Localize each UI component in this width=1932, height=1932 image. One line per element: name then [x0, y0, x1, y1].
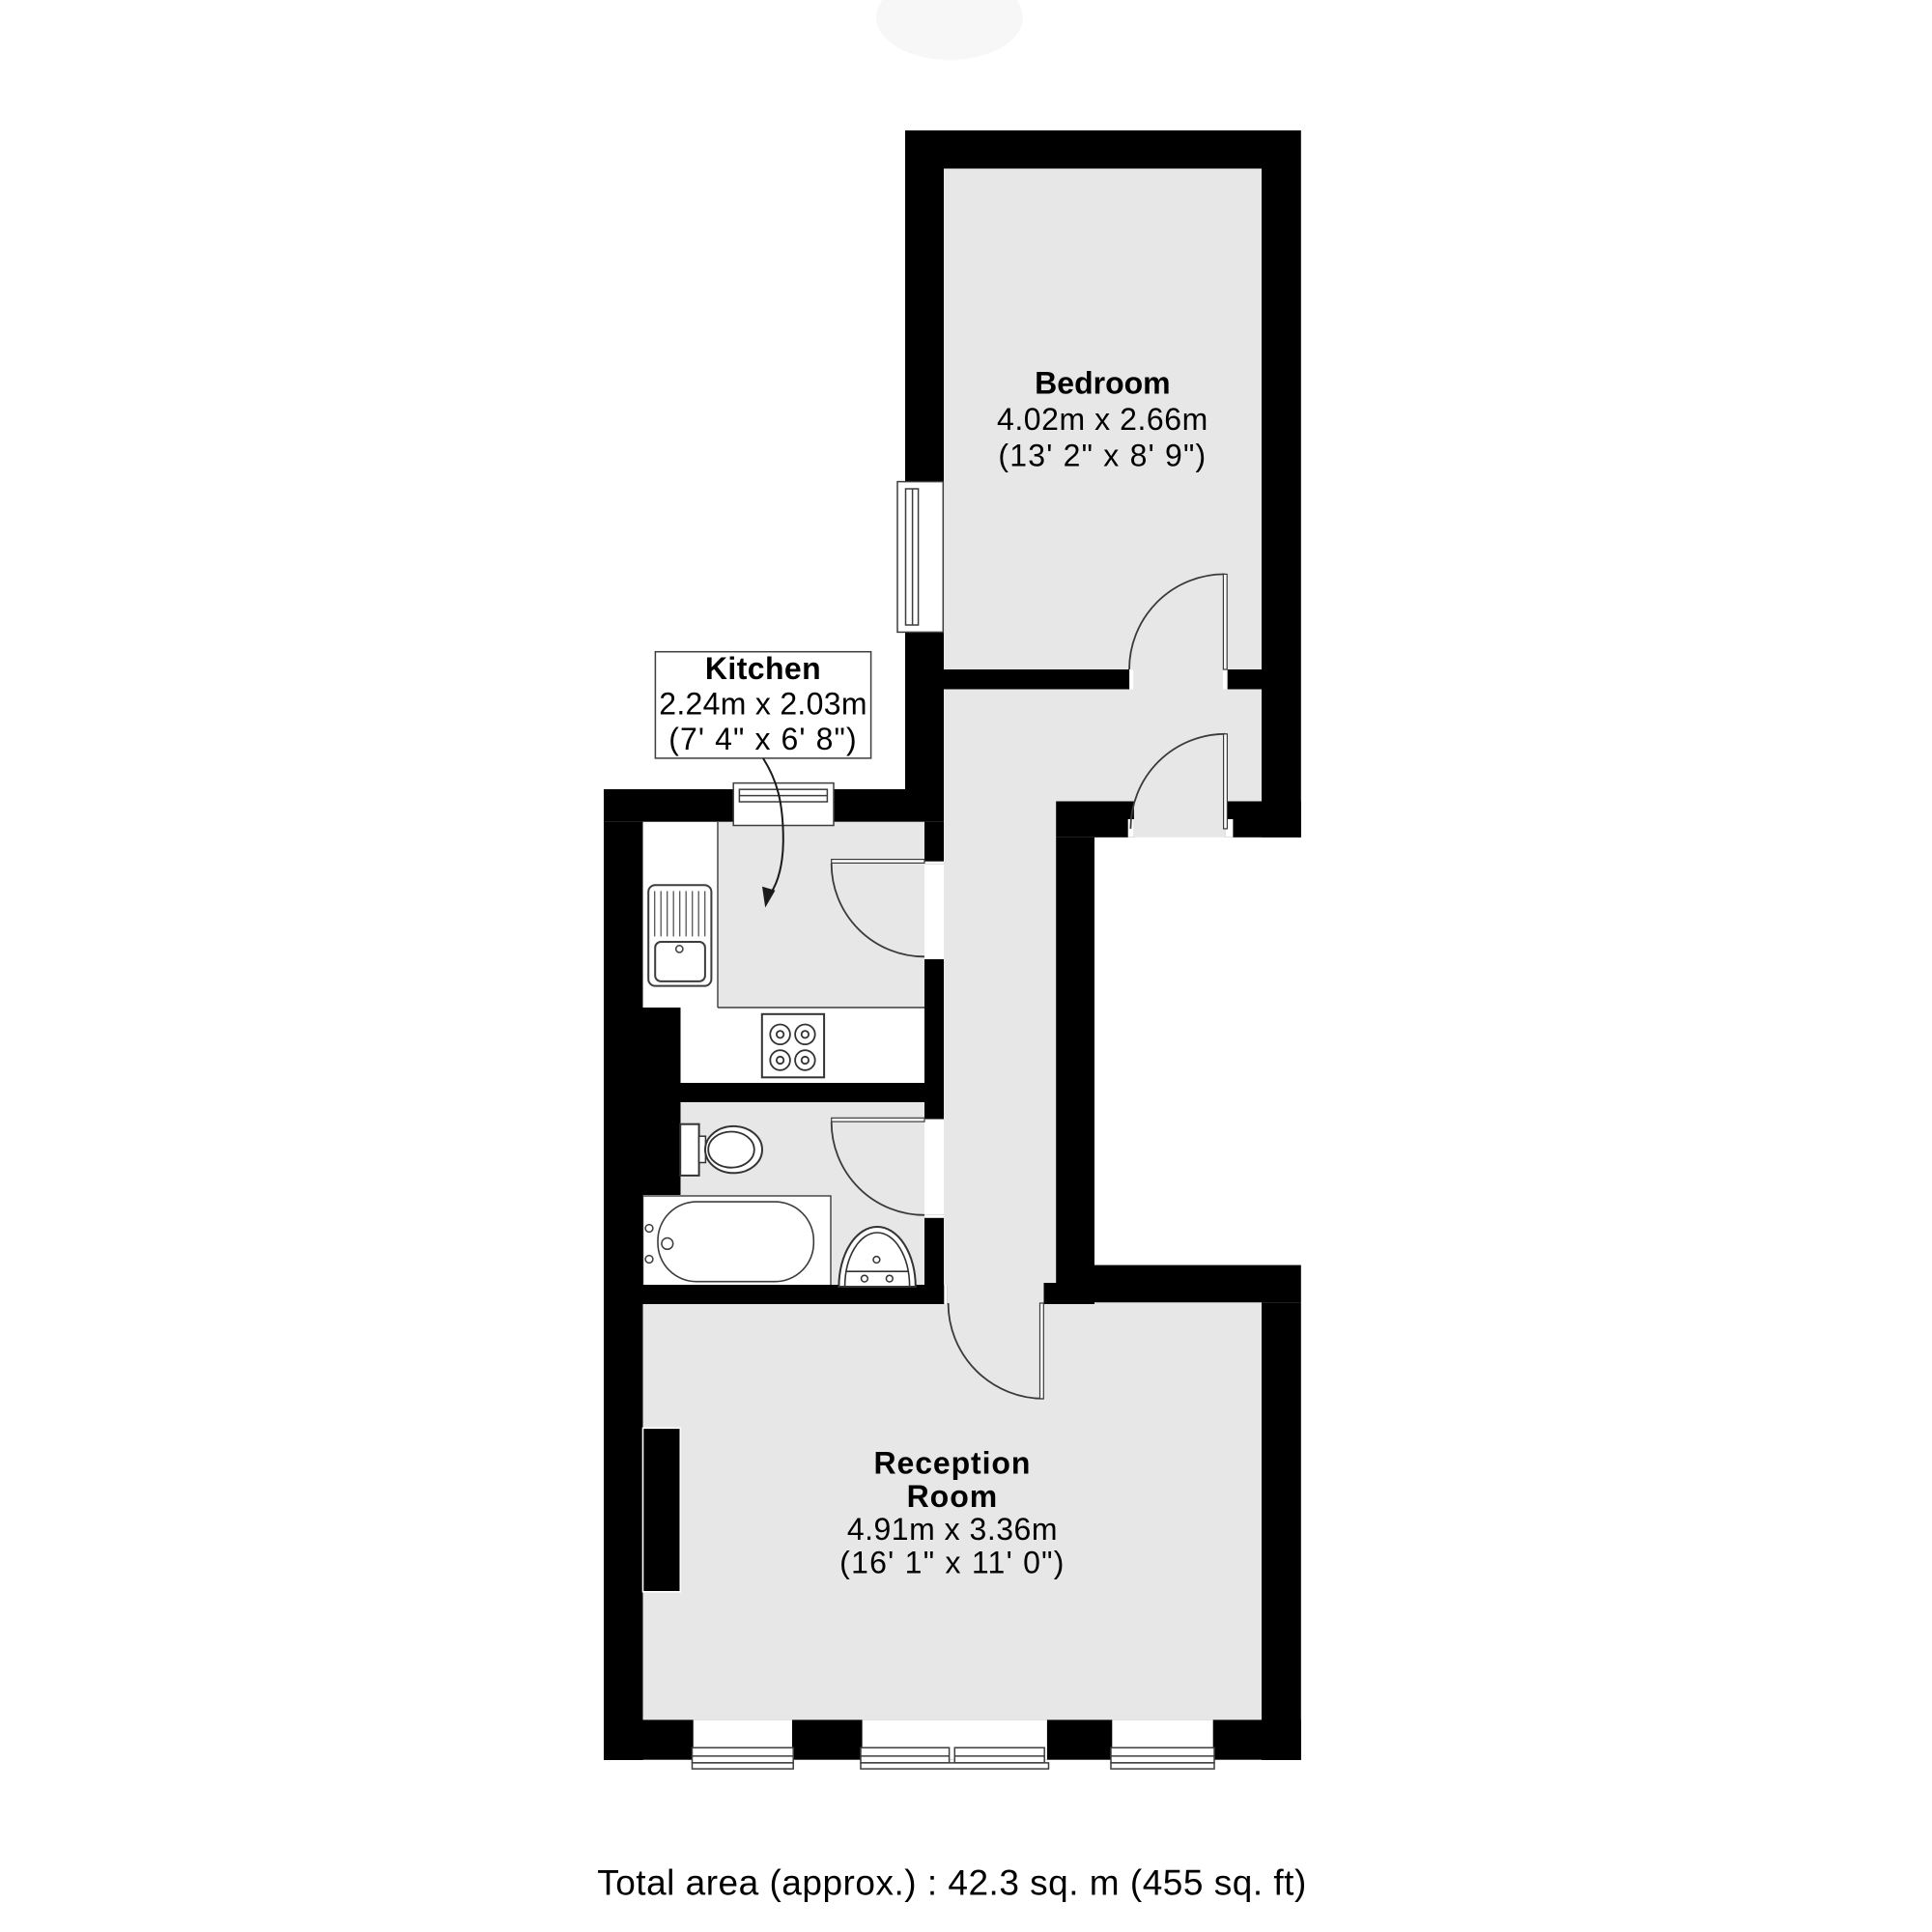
- svg-text:Bedroom: Bedroom: [1035, 365, 1170, 400]
- svg-text:Reception: Reception: [874, 1446, 1032, 1481]
- svg-text:(13' 2" x 8' 9"): (13' 2" x 8' 9"): [998, 438, 1207, 472]
- svg-text:Total area (approx.) : 42.3 sq: Total area (approx.) : 42.3 sq. m (455 s…: [597, 1863, 1307, 1903]
- svg-text:Kitchen: Kitchen: [705, 651, 821, 686]
- svg-text:(16' 1" x 11' 0"): (16' 1" x 11' 0"): [839, 1545, 1065, 1579]
- svg-text:Room: Room: [907, 1479, 999, 1514]
- svg-text:2.24m x 2.03m: 2.24m x 2.03m: [659, 687, 867, 722]
- svg-text:(7' 4" x 6' 8"): (7' 4" x 6' 8"): [668, 722, 858, 756]
- svg-text:4.91m x 3.36m: 4.91m x 3.36m: [847, 1512, 1058, 1547]
- svg-text:4.02m x 2.66m: 4.02m x 2.66m: [997, 402, 1208, 437]
